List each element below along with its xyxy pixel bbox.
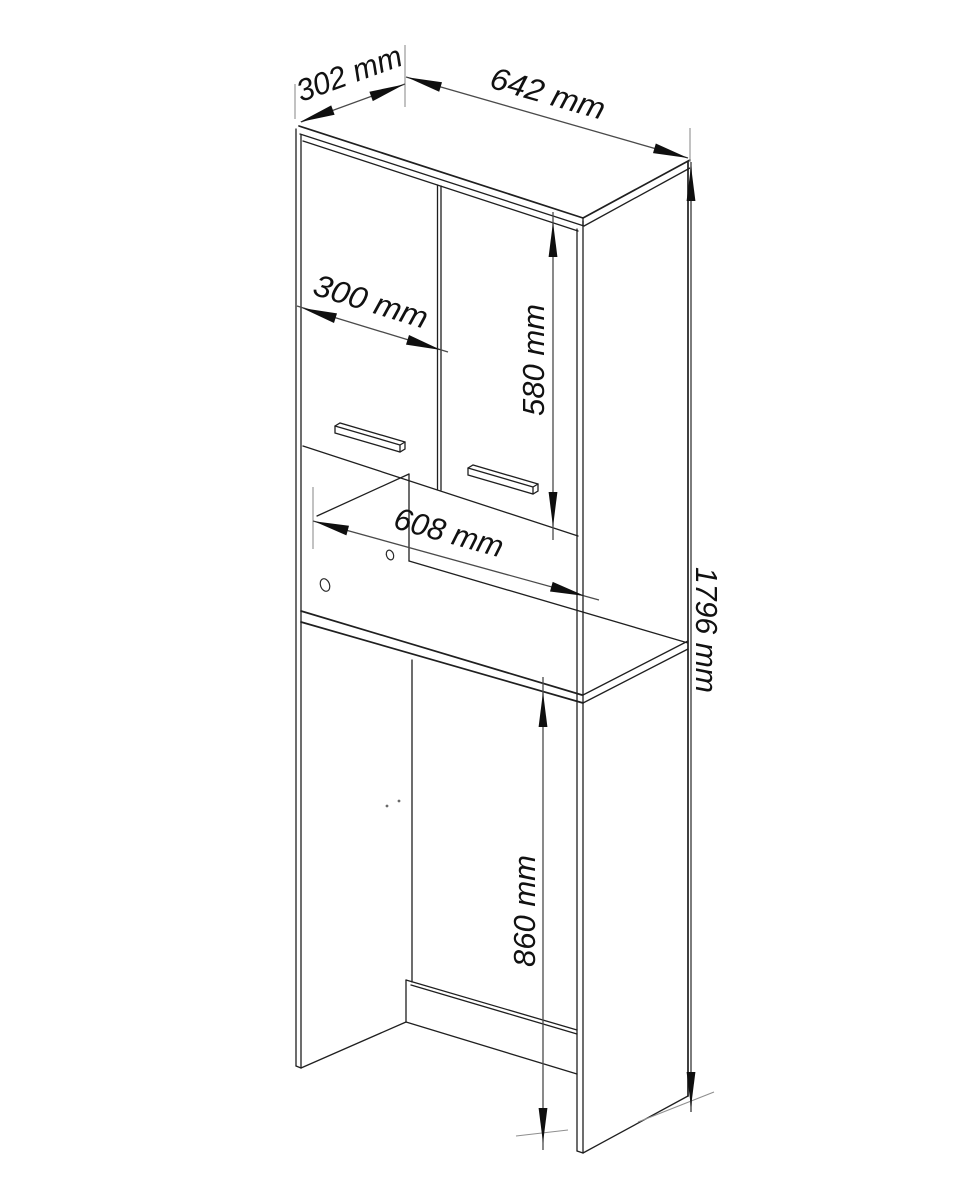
edge-top-right — [583, 160, 690, 218]
arrowhead — [406, 335, 441, 350]
dimension-label-door-width: 300 mm — [309, 267, 432, 335]
edge-plinth-bottom — [406, 1022, 577, 1074]
dimension-label-door-height: 580 mm — [516, 304, 551, 416]
edge-mid-shelf-bottom — [301, 622, 583, 703]
arrowhead — [549, 222, 558, 257]
edge-plinth-top — [406, 980, 577, 1030]
tick-1796-bottom — [638, 1092, 714, 1122]
edge-left-panel-bottom — [301, 1022, 406, 1068]
edge-mid-shelf-right-top — [583, 641, 688, 695]
edge-plinth-top-sliver — [411, 985, 577, 1034]
cabinet-dimension-drawing: 302 mm 642 mm 300 mm 608 mm 580 mm 860 m… — [0, 0, 973, 1200]
edge-mid-shelf-right-bottom — [583, 649, 688, 703]
dimension-depth: 302 mm — [292, 38, 407, 122]
dimension-label-depth: 302 mm — [292, 38, 407, 109]
speck-dots — [386, 800, 401, 808]
edge-left-bottom-tip — [296, 1066, 301, 1068]
dimension-label-lower-space-height: 860 mm — [507, 855, 542, 967]
dimension-door-width: 300 mm — [297, 267, 448, 352]
dimension-niche-width: 608 mm — [313, 501, 599, 600]
dimension-lower-space-height: 860 mm — [507, 677, 547, 1150]
arrowhead — [653, 144, 688, 159]
arrowhead — [550, 582, 585, 596]
arrowhead — [407, 77, 442, 92]
door-handle-right — [468, 465, 538, 494]
extension-lines — [295, 45, 714, 1136]
arrowhead — [539, 692, 548, 727]
shelf-pin-holes — [319, 549, 395, 593]
arrowhead — [302, 308, 337, 323]
edge-niche-floor-back — [409, 561, 688, 643]
dimension-total-height: 1796 mm — [687, 162, 724, 1112]
dimension-label-niche-width: 608 mm — [390, 501, 507, 565]
edge-niche-ceiling-left — [317, 474, 409, 516]
edge-right-bottom-tip — [577, 1151, 583, 1153]
door-handle-left — [335, 423, 405, 452]
arrowhead — [539, 1108, 548, 1143]
edge-top-band-right — [584, 168, 690, 226]
dimension-label-total-height: 1796 mm — [689, 567, 724, 693]
dimension-width: 642 mm — [406, 60, 688, 158]
arrowhead — [314, 521, 349, 535]
dimension-label-width: 642 mm — [486, 60, 609, 126]
arrowhead — [549, 492, 558, 527]
edge-top-band-front — [300, 134, 584, 226]
edge-right-panel-bottom — [583, 1096, 688, 1153]
edge-mid-shelf-top — [301, 611, 582, 695]
arrowhead — [369, 85, 404, 102]
